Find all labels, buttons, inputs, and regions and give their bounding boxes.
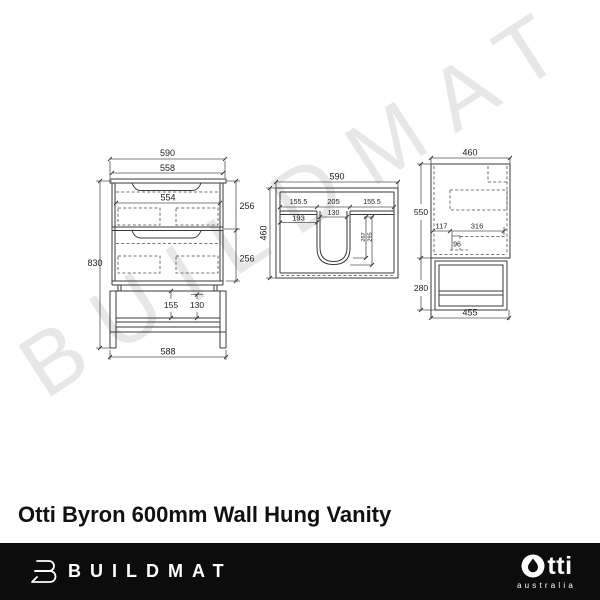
side-view-drawing: 460 550 117 316 96 280 455 bbox=[410, 140, 545, 330]
dim-plan-left-offset: 155.5 bbox=[290, 199, 308, 206]
dim-front-overall-width: 590 bbox=[160, 148, 175, 158]
dim-front-carcass-width: 558 bbox=[160, 163, 175, 173]
buildmat-brand-text: BUILDMAT bbox=[68, 561, 233, 582]
lower-shelf-frame bbox=[110, 285, 226, 348]
dim-side-base-depth: 455 bbox=[462, 308, 477, 318]
dim-plan-basin-opening: 205 bbox=[327, 197, 340, 206]
otti-drop-icon bbox=[520, 553, 546, 579]
dim-plan-overall-width: 590 bbox=[329, 172, 344, 182]
dim-front-drawer-inner-width: 554 bbox=[160, 193, 175, 203]
front-view-drawing: 590 558 554 256 256 830 155 130 588 bbox=[85, 145, 260, 365]
footer-bar: BUILDMAT tti australia bbox=[0, 543, 600, 600]
dim-plan-basin-depth-b: 295 bbox=[368, 232, 374, 241]
dim-side-overall-depth: 460 bbox=[462, 148, 477, 158]
dim-plan-basin-depth-a: 267 bbox=[361, 232, 367, 241]
dim-front-shelf-clearance: 155 bbox=[164, 300, 178, 310]
dim-side-cutout-drop: 96 bbox=[453, 242, 461, 249]
dim-side-shelf-unit-height: 280 bbox=[414, 283, 428, 293]
dim-plan-basin-inner-width: 130 bbox=[328, 210, 340, 217]
drawer-handle-recesses bbox=[132, 183, 201, 238]
page-title: Otti Byron 600mm Wall Hung Vanity bbox=[18, 502, 391, 528]
dim-side-cabinet-height: 550 bbox=[414, 207, 428, 217]
dim-front-bottom-drawer-height: 256 bbox=[239, 254, 254, 264]
dim-side-back-offset: 117 bbox=[436, 222, 448, 231]
dim-front-shelf-inner-height: 130 bbox=[190, 300, 204, 310]
otti-logo: tti australia bbox=[517, 553, 576, 590]
dim-front-top-drawer-height: 256 bbox=[239, 201, 254, 211]
dim-front-base-width: 588 bbox=[160, 347, 175, 357]
dim-side-cutout-depth: 316 bbox=[471, 222, 484, 231]
otti-wordmark-rest: tti bbox=[547, 554, 572, 579]
hidden-drawer-outline bbox=[450, 190, 507, 210]
plan-view-drawing: 590 460 155.5 205 155.5 130 193 267 295 bbox=[255, 170, 405, 290]
buildmat-logo-icon bbox=[28, 558, 58, 586]
dim-front-overall-height: 830 bbox=[87, 258, 102, 268]
dim-plan-right-offset: 155.5 bbox=[363, 199, 381, 206]
dim-plan-overall-depth: 460 bbox=[259, 225, 269, 240]
otti-australia-text: australia bbox=[517, 581, 576, 590]
dim-plan-left-inner-offset: 193 bbox=[292, 214, 305, 223]
product-dimension-sheet: BUILDMAT 590 558 554 256 256 830 155 130… bbox=[0, 0, 600, 600]
